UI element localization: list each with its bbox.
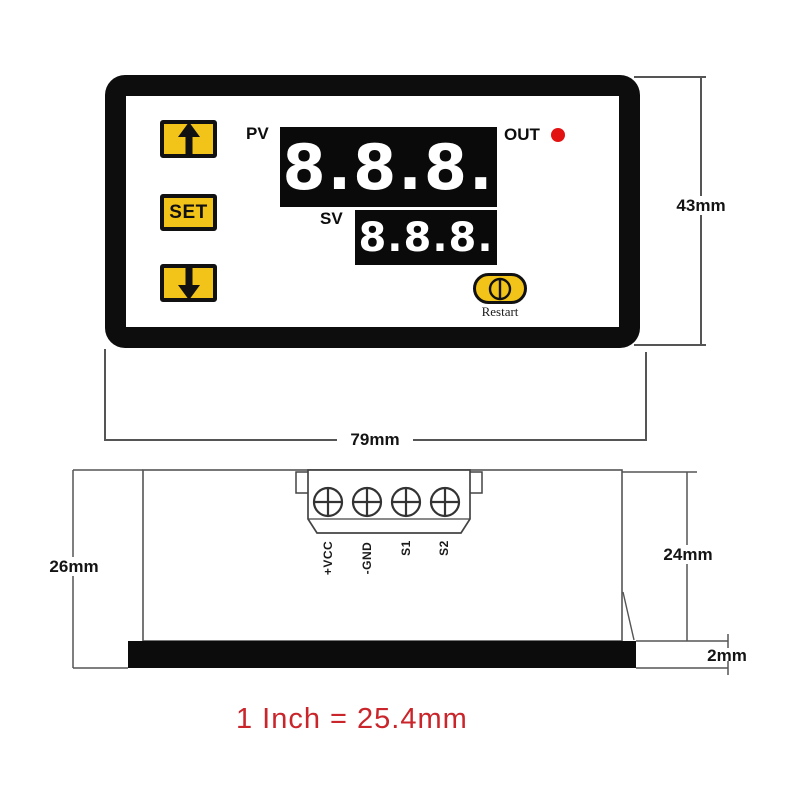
arrow-up-icon	[176, 122, 202, 156]
dim-79mm-extension-right	[645, 352, 647, 440]
out-label: OUT	[504, 125, 540, 145]
dim-24mm-label: 24mm	[659, 545, 717, 564]
terminal-screw-icon	[353, 488, 381, 516]
dim-43mm-extension-top	[634, 76, 706, 78]
sv-display: 8.8.8.	[355, 210, 497, 265]
restart-button-label: Restart	[468, 304, 532, 320]
scale-note: 1 Inch = 25.4mm	[236, 703, 468, 736]
side-view-drawing	[30, 455, 760, 700]
product-dimension-diagram: SET PV 8.8.8. SV 8.8.8. OUT Restart 43mm…	[0, 0, 800, 800]
set-button-label: SET	[169, 202, 207, 224]
arrow-down-icon	[176, 266, 202, 300]
dim-43mm-extension-bottom	[634, 344, 706, 346]
front-bezel-side-profile	[128, 641, 636, 668]
down-button	[160, 264, 217, 302]
pv-display-value: 8.8.8.	[282, 131, 494, 204]
pv-display: 8.8.8.	[280, 127, 497, 207]
up-button	[160, 120, 217, 158]
dim-26mm-label: 26mm	[46, 557, 102, 576]
terminal-label-vcc: +VCC	[321, 518, 335, 598]
terminal-screw-icon	[314, 488, 342, 516]
dim-2mm-label: 2mm	[703, 646, 751, 665]
out-led-indicator	[551, 128, 565, 142]
sv-display-value: 8.8.8.	[358, 215, 493, 261]
terminal-label-s2: S2	[437, 508, 451, 588]
sv-label: SV	[320, 209, 343, 229]
power-reset-icon	[488, 277, 512, 301]
terminal-block-ear-left	[296, 472, 309, 493]
mounting-clip-line	[623, 592, 634, 640]
dim-43mm-label: 43mm	[672, 196, 730, 215]
dim-79mm-label: 79mm	[337, 430, 413, 449]
terminal-label-gnd: -GND	[360, 518, 374, 598]
restart-button	[473, 273, 527, 304]
pv-label: PV	[246, 124, 269, 144]
terminal-label-s1: S1	[399, 508, 413, 588]
dim-79mm-extension-left	[104, 349, 106, 440]
set-button: SET	[160, 194, 217, 231]
terminal-block-ear-right	[469, 472, 482, 493]
